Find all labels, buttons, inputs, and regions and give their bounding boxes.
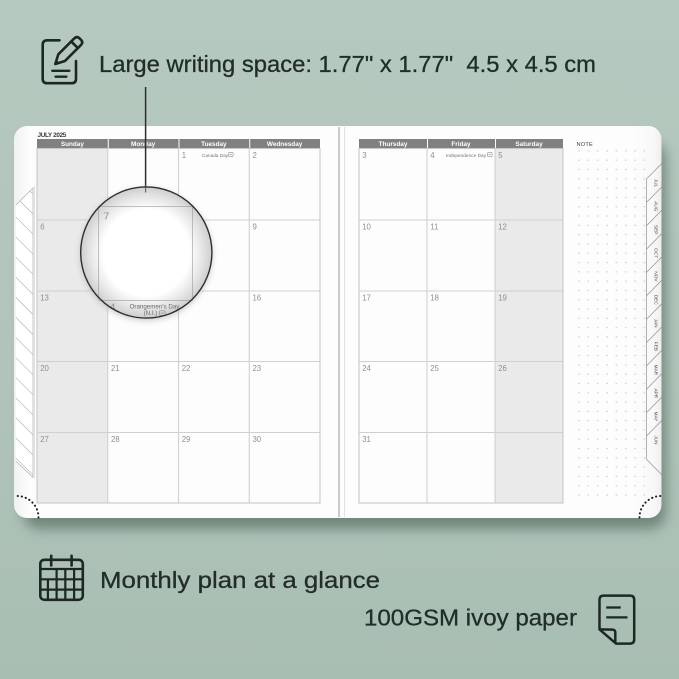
svg-text:Canada Day: Canada Day — [202, 153, 229, 158]
svg-text:17: 17 — [362, 293, 371, 302]
svg-text:NOTE: NOTE — [577, 142, 594, 148]
svg-text:Wednesday: Wednesday — [267, 141, 303, 148]
svg-text:OCT: OCT — [654, 248, 659, 258]
svg-text:Thursday: Thursday — [379, 141, 408, 148]
svg-text:18: 18 — [430, 293, 439, 302]
svg-text:21: 21 — [111, 364, 120, 373]
svg-text:20: 20 — [40, 364, 49, 373]
svg-text:16: 16 — [252, 293, 261, 302]
svg-text:MAR: MAR — [654, 365, 659, 376]
svg-text:26: 26 — [498, 364, 507, 373]
svg-text:Tuesday: Tuesday — [201, 141, 227, 148]
svg-text:28: 28 — [111, 435, 120, 444]
svg-text:1: 1 — [182, 151, 186, 160]
svg-text:6: 6 — [40, 222, 44, 231]
svg-text:29: 29 — [182, 435, 191, 444]
svg-text:JUN: JUN — [654, 435, 659, 444]
svg-text:Sunday: Sunday — [61, 141, 85, 148]
svg-text:31: 31 — [362, 435, 371, 444]
svg-text:12: 12 — [498, 222, 507, 231]
svg-text:30: 30 — [252, 435, 261, 444]
svg-text:27: 27 — [40, 435, 49, 444]
svg-text:JUL: JUL — [654, 179, 659, 188]
svg-text:MAY: MAY — [654, 412, 659, 423]
svg-text:19: 19 — [498, 293, 507, 302]
svg-text:JULY 2025: JULY 2025 — [38, 132, 67, 139]
svg-text:JAN: JAN — [654, 319, 659, 328]
svg-text:FEB: FEB — [654, 342, 659, 351]
svg-text:Friday: Friday — [451, 141, 471, 148]
svg-text:13: 13 — [40, 293, 49, 302]
svg-text:Independence Day: Independence Day — [446, 153, 487, 158]
svg-text:Saturday: Saturday — [515, 141, 543, 148]
svg-text:Large writing space: 1.77" x 1: Large writing space: 1.77" x 1.77" 4.5 x… — [99, 51, 596, 77]
svg-text:100GSM ivoy paper: 100GSM ivoy paper — [364, 605, 577, 631]
svg-text:Monthly plan at a glance: Monthly plan at a glance — [100, 567, 380, 593]
svg-text:22: 22 — [182, 364, 191, 373]
svg-text:Monday: Monday — [131, 141, 156, 148]
svg-text:3: 3 — [362, 151, 366, 160]
svg-text:23: 23 — [252, 364, 261, 373]
svg-text:5: 5 — [498, 151, 503, 160]
svg-text:2: 2 — [252, 151, 256, 160]
svg-text:SEP: SEP — [654, 225, 659, 234]
svg-text:4: 4 — [430, 151, 435, 160]
svg-text:NOV: NOV — [654, 271, 659, 282]
svg-text:AUG: AUG — [654, 201, 659, 212]
svg-text:11: 11 — [430, 222, 438, 231]
svg-text:24: 24 — [362, 364, 371, 373]
svg-text:DEC: DEC — [654, 295, 659, 306]
svg-text:10: 10 — [362, 222, 371, 231]
svg-text:9: 9 — [252, 222, 256, 231]
svg-text:25: 25 — [430, 364, 439, 373]
svg-text:APR: APR — [654, 388, 659, 398]
